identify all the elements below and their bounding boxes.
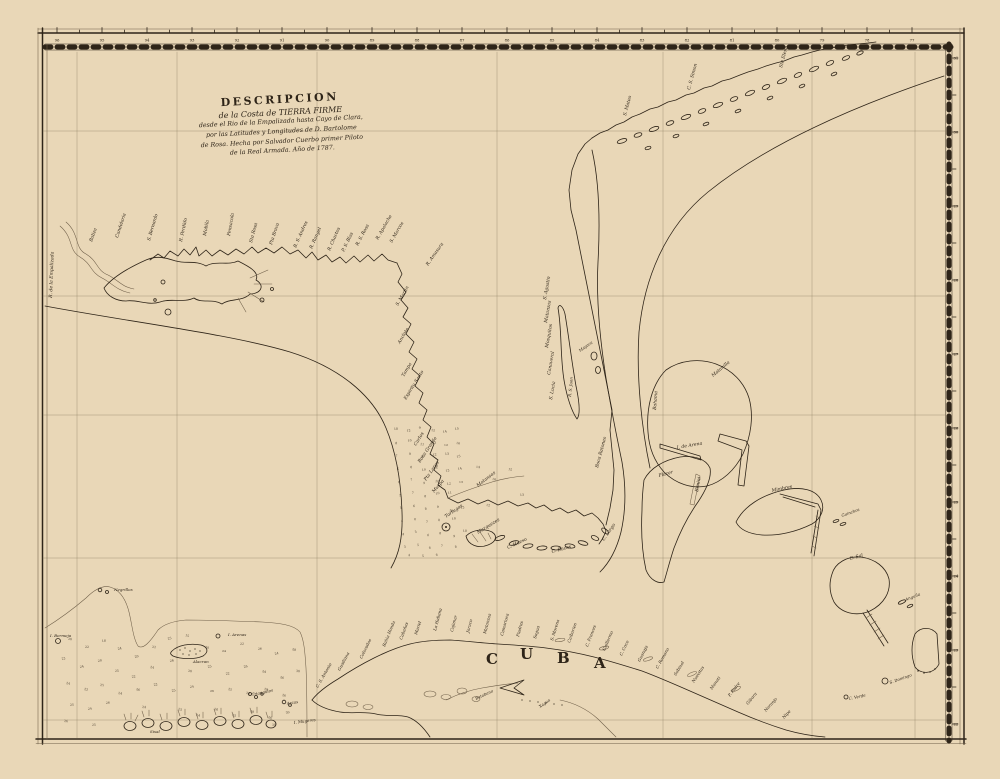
depth-sounding: 26: [64, 719, 68, 723]
depth-sounding: 18: [102, 639, 106, 643]
depth-sounding: 14: [442, 429, 447, 434]
longitude-value: 85: [550, 38, 555, 43]
depth-sounding: 25: [228, 687, 233, 692]
depth-sounding: 11: [420, 442, 425, 447]
depth-sounding: 25: [178, 707, 183, 712]
depth-sounding: 25: [70, 703, 74, 707]
place-label: Naranjo: [762, 696, 778, 713]
depth-sounding: 14: [457, 466, 462, 471]
depth-sounding: 26: [169, 658, 174, 663]
place-labels: R. de la EmpalizadaBalizaCandelariaS. Be…: [48, 45, 921, 734]
place-label: S. Agustin: [542, 276, 552, 300]
depth-sounding: 24: [88, 706, 92, 711]
depth-sounding: 26: [268, 715, 273, 720]
longitude-value: 92: [235, 38, 240, 43]
place-label: P. Padre: [726, 681, 741, 699]
place-label: Pta Brava: [268, 222, 281, 247]
place-label: Caibarien: [566, 622, 578, 644]
place-label: Mimbres: [770, 484, 793, 495]
depth-sounding: 6: [397, 467, 399, 471]
place-label: Bahia Honda: [381, 620, 396, 649]
place-label: R. Chactos: [326, 226, 342, 253]
depth-sounding: 26: [106, 700, 110, 705]
place-label: Cabañas: [398, 621, 409, 640]
place-label: S. Bernardo: [146, 213, 159, 242]
depth-sounding: 24: [246, 691, 250, 695]
title-cartouche: DESCRIPCION de la Costa de TIERRA FIRME …: [188, 88, 373, 160]
place-label: Matanzas: [543, 300, 553, 325]
place-label: Matanzas: [482, 613, 492, 635]
depth-sounding: 25: [115, 669, 119, 673]
place-label: I. Mugeres: [292, 717, 316, 725]
place-label: Canaveral: [546, 350, 556, 375]
depth-sounding: 8: [439, 531, 442, 535]
place-label: P. S. Blas: [340, 231, 355, 254]
place-label: Nipe: [780, 708, 792, 720]
place-label: R. S. Juan: [567, 376, 574, 398]
place-label: S. Lucia: [548, 381, 557, 401]
place-label: S. Mateo: [622, 95, 633, 117]
place-label: R. Perdido: [178, 217, 189, 243]
place-label: Sta Rosa: [248, 222, 259, 244]
depth-sounding: 8: [424, 507, 427, 511]
depth-sounding: 24: [190, 684, 194, 689]
soundings-campeche: 2022182420222515202422262428222420252224…: [61, 633, 300, 727]
depth-sounding: 9: [437, 505, 439, 509]
place-label: I. Arenas: [227, 632, 246, 637]
place-label: Sisal: [150, 729, 160, 734]
map-canvas: 1012912141581011131216791012131568101112…: [0, 0, 1000, 779]
depth-sounding: 6: [427, 533, 429, 537]
map-border: [36, 28, 966, 744]
depth-sounding: 10: [407, 438, 412, 443]
depth-sounding: 25: [167, 636, 172, 641]
place-label: Cojimar: [449, 614, 458, 633]
depth-sounding: 25: [100, 683, 104, 687]
depth-sounding: 14: [476, 465, 480, 469]
place-label: C. Sal: [849, 552, 864, 561]
depth-sounding: 5: [422, 554, 424, 558]
depth-sounding: 20: [205, 645, 210, 650]
florida-interior: [448, 306, 601, 498]
depth-sounding: 25: [207, 664, 212, 669]
longitude-value: 94: [145, 38, 150, 43]
place-label: Sabinal: [673, 660, 686, 677]
latitude-value: 26: [954, 426, 959, 431]
longitude-value: 82: [685, 38, 690, 43]
place-label: Mariel: [413, 620, 423, 636]
place-label: Sagua: [532, 625, 541, 640]
place-label: C. Frances: [584, 624, 597, 647]
place-label: Pensacola: [226, 212, 236, 237]
place-label: I. Bermeja: [49, 633, 72, 638]
depth-sounding: 8: [424, 494, 427, 498]
depth-sounding: 12: [447, 482, 451, 486]
depth-sounding: 26: [282, 693, 287, 698]
depth-sounding: 6: [413, 504, 415, 508]
latitude-value: 22: [954, 722, 959, 727]
depth-sounding: 7: [410, 478, 413, 482]
longitude-value: 77: [910, 38, 915, 43]
depth-sounding: 22: [85, 645, 89, 649]
latitude-value: 23: [954, 648, 959, 653]
depth-sounding: 25: [171, 688, 176, 693]
longitude-value: 80: [775, 38, 780, 43]
depth-sounding: 30: [285, 710, 290, 715]
place-label: Batabano: [473, 688, 494, 701]
longitude-value: 91: [280, 38, 285, 43]
longitude-value: 87: [460, 38, 465, 43]
place-label: C. Coco: [618, 639, 630, 656]
place-label: Baliza: [88, 227, 99, 244]
depth-sounding: 24: [66, 681, 71, 686]
depth-sounding: 28: [250, 709, 255, 714]
depth-sounding: 24: [118, 691, 123, 696]
depth-sounding: 8: [395, 441, 398, 445]
latitude-value: 28: [954, 278, 959, 283]
place-label: Colorados: [358, 638, 372, 659]
depth-sounding: 8: [410, 465, 413, 469]
offshore-lines: [45, 76, 944, 572]
depth-sounding: 15: [456, 454, 461, 459]
place-label: Guadiana: [336, 651, 350, 672]
depth-sounding: 8: [454, 545, 457, 549]
depth-sounding: 22: [131, 674, 136, 679]
depth-sounding: 9: [423, 481, 425, 485]
place-label: Gibara: [745, 691, 758, 706]
place-label: Alacran: [192, 659, 209, 664]
longitude-value: 78: [865, 38, 870, 43]
depth-sounding: 13: [520, 493, 524, 497]
longitude-value: 81: [730, 38, 735, 43]
depth-sounding: 7: [426, 520, 428, 524]
place-label: Manati: [708, 675, 722, 692]
place-label: S. Marcos: [389, 220, 406, 244]
place-label: Mayaca: [577, 339, 594, 353]
place-label: Mobila: [202, 219, 211, 237]
place-label: Negrillos: [113, 587, 133, 592]
depth-sounding: 24: [117, 646, 122, 651]
depth-sounding: 7: [441, 544, 443, 548]
depth-sounding: 22: [152, 645, 156, 649]
latitude-value: 27: [954, 352, 959, 357]
depth-sounding: 15: [455, 427, 459, 431]
depth-sounding: 12: [432, 452, 437, 457]
cuba-letter: C: [486, 650, 498, 668]
depth-sounding: 20: [97, 658, 102, 663]
depth-sounding: 6: [414, 517, 417, 521]
place-label: Nuevitas: [690, 665, 705, 684]
place-label: R. de la Empalizada: [48, 251, 56, 299]
graticule: [43, 52, 946, 738]
depth-sounding: 24: [79, 664, 84, 669]
depth-sounding: 10: [394, 427, 398, 431]
depth-sounding: 10: [422, 468, 426, 472]
depth-sounding: 22: [240, 642, 244, 646]
depth-sounding: 7: [412, 491, 415, 495]
cuba-letter: B: [557, 649, 570, 667]
depth-sounding: 15: [508, 467, 513, 472]
depth-sounding: 26: [210, 689, 214, 693]
depth-sounding: 26: [214, 707, 219, 712]
depth-sounding: 24: [150, 665, 155, 670]
latitude-value: 25: [954, 500, 959, 505]
depth-sounding: 12: [445, 468, 450, 473]
depth-sounding: 22: [61, 656, 66, 661]
depth-sounding: 7: [395, 454, 398, 458]
depth-sounding: 26: [243, 664, 248, 669]
florida-keys: [442, 523, 609, 550]
place-label: C. Bacas: [551, 544, 573, 555]
depth-sounding: 9: [418, 426, 421, 430]
depth-sounding: 16: [456, 441, 460, 445]
depth-sounding: 25: [232, 713, 237, 718]
longitude-value: 88: [415, 38, 420, 43]
depth-sounding: 20: [188, 669, 192, 673]
depth-sounding: 9: [453, 534, 456, 538]
place-label: C. S. Simon: [686, 63, 699, 91]
place-label: S. Domingo: [889, 672, 913, 685]
depth-sounding: 9: [409, 452, 411, 456]
place-label: Guinchos: [841, 507, 860, 518]
depth-sounding: 10: [451, 516, 456, 521]
depth-sounding: 24: [196, 713, 201, 718]
longitude-value: 83: [640, 38, 645, 43]
depth-sounding: 22: [84, 687, 89, 692]
place-label: R. Amasura: [424, 241, 445, 268]
depth-sounding: 22: [153, 682, 158, 687]
place-label: Guanaja: [636, 644, 649, 662]
place-label: R. S. Rosa: [354, 223, 371, 248]
longitude-value: 95: [100, 38, 105, 43]
place-label: Mosquitos: [544, 323, 554, 349]
place-label: C. S. Antonio: [315, 662, 333, 689]
place-label: Boca Ratones: [594, 436, 608, 470]
place-label: Bahama: [652, 391, 659, 412]
depth-sounding: 28: [292, 647, 297, 652]
place-label: Camarioca: [499, 612, 510, 636]
depth-sounding: 13: [445, 452, 449, 456]
sea-islands: [617, 50, 864, 150]
latitude-value: 30: [954, 130, 959, 135]
depth-sounding: 30: [296, 669, 300, 673]
longitude-value: 79: [820, 38, 825, 43]
depth-sounding: 26: [136, 687, 141, 692]
place-label: C. Romano: [655, 646, 671, 669]
campeche-bank: [45, 587, 307, 737]
depth-sounding: 26: [258, 647, 262, 651]
depth-sounding: 6: [428, 546, 431, 550]
place-label: Xagua: [537, 697, 552, 709]
place-label: Piedras: [515, 621, 524, 639]
depth-sounding: 13: [459, 480, 463, 484]
longitude-value: 84: [595, 38, 600, 43]
cuba-letter: U: [520, 645, 533, 663]
place-label: B. S. Andres: [292, 220, 310, 250]
longitude-value: 96: [55, 38, 60, 43]
depth-sounding: 6: [435, 553, 438, 557]
longitude-value: 93: [190, 38, 195, 43]
latitude-value: 29: [954, 204, 959, 209]
latitude-value: 24: [954, 574, 959, 579]
longitude-value: 86: [505, 38, 510, 43]
depth-sounding: 12: [431, 428, 435, 433]
depth-sounding: 26: [280, 675, 285, 680]
depth-sounding: 24: [142, 705, 146, 709]
depth-sounding: 12: [486, 503, 490, 507]
place-label: Jaruco: [465, 618, 474, 634]
cuba-title-letters: CUBA: [486, 645, 606, 672]
depth-sounding: 20: [134, 654, 139, 659]
depth-sounding: 4: [401, 519, 403, 523]
depth-sounding: 8: [438, 518, 440, 522]
depth-sounding: 10: [463, 529, 467, 533]
bahama-banks: [642, 361, 939, 699]
longitude-value: 90: [325, 38, 330, 43]
depth-sounding: 24: [262, 669, 267, 674]
place-label: R. Rangel: [308, 226, 323, 251]
depth-sounding: 3: [403, 545, 406, 549]
depth-sounding: 24: [222, 649, 226, 653]
depth-sounding: 4: [408, 553, 410, 557]
depth-sounding: 30: [272, 723, 276, 727]
place-label: Placer: [657, 469, 675, 479]
antique-chart-sheet: 1012912141581011131216791012131568101112…: [0, 0, 1000, 779]
longitude-value: 89: [370, 38, 375, 43]
depth-sounding: 12: [406, 428, 411, 433]
place-label: Arcas: [285, 699, 298, 706]
place-label: Matanilla: [710, 360, 732, 380]
place-label: C. Verde: [848, 692, 866, 701]
place-label: Tampa: [401, 361, 414, 378]
place-label: S. Morena: [549, 618, 560, 641]
depth-sounding: 4: [402, 532, 405, 536]
depth-sounding: 5: [417, 543, 419, 547]
depth-sounding: 15: [185, 633, 190, 638]
depth-sounding: 6: [398, 480, 400, 484]
place-label: Candelaria: [114, 212, 128, 238]
latitude-value: 31: [954, 56, 959, 61]
place-label: Anguila: [904, 591, 922, 602]
place-label: I. de Arena: [675, 441, 703, 452]
depth-sounding: 25: [92, 723, 96, 727]
depth-sounding: 24: [274, 651, 279, 656]
depth-sounding: 5: [414, 530, 417, 534]
depth-sounding: 22: [225, 671, 230, 676]
place-label: C. Hueso: [506, 536, 528, 550]
place-label: La Habana: [432, 607, 443, 632]
depth-sounding: 12: [444, 443, 448, 447]
depth-sounding: 11: [448, 490, 452, 495]
cuba-letter: A: [593, 654, 606, 672]
